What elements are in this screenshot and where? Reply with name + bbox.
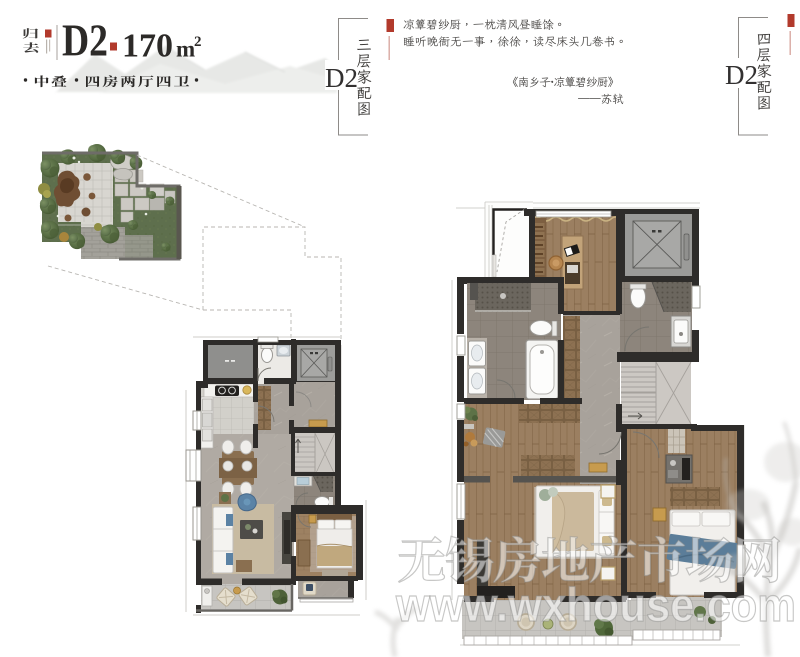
svg-text:2: 2: [194, 34, 202, 50]
svg-text:m: m: [176, 37, 195, 62]
svg-text:D2: D2: [325, 63, 358, 93]
svg-text:D2: D2: [725, 60, 758, 90]
svg-text:D2: D2: [62, 15, 108, 66]
svg-text:www.wxhouse.com: www.wxhouse.com: [395, 578, 796, 631]
svg-text:170: 170: [122, 28, 173, 65]
